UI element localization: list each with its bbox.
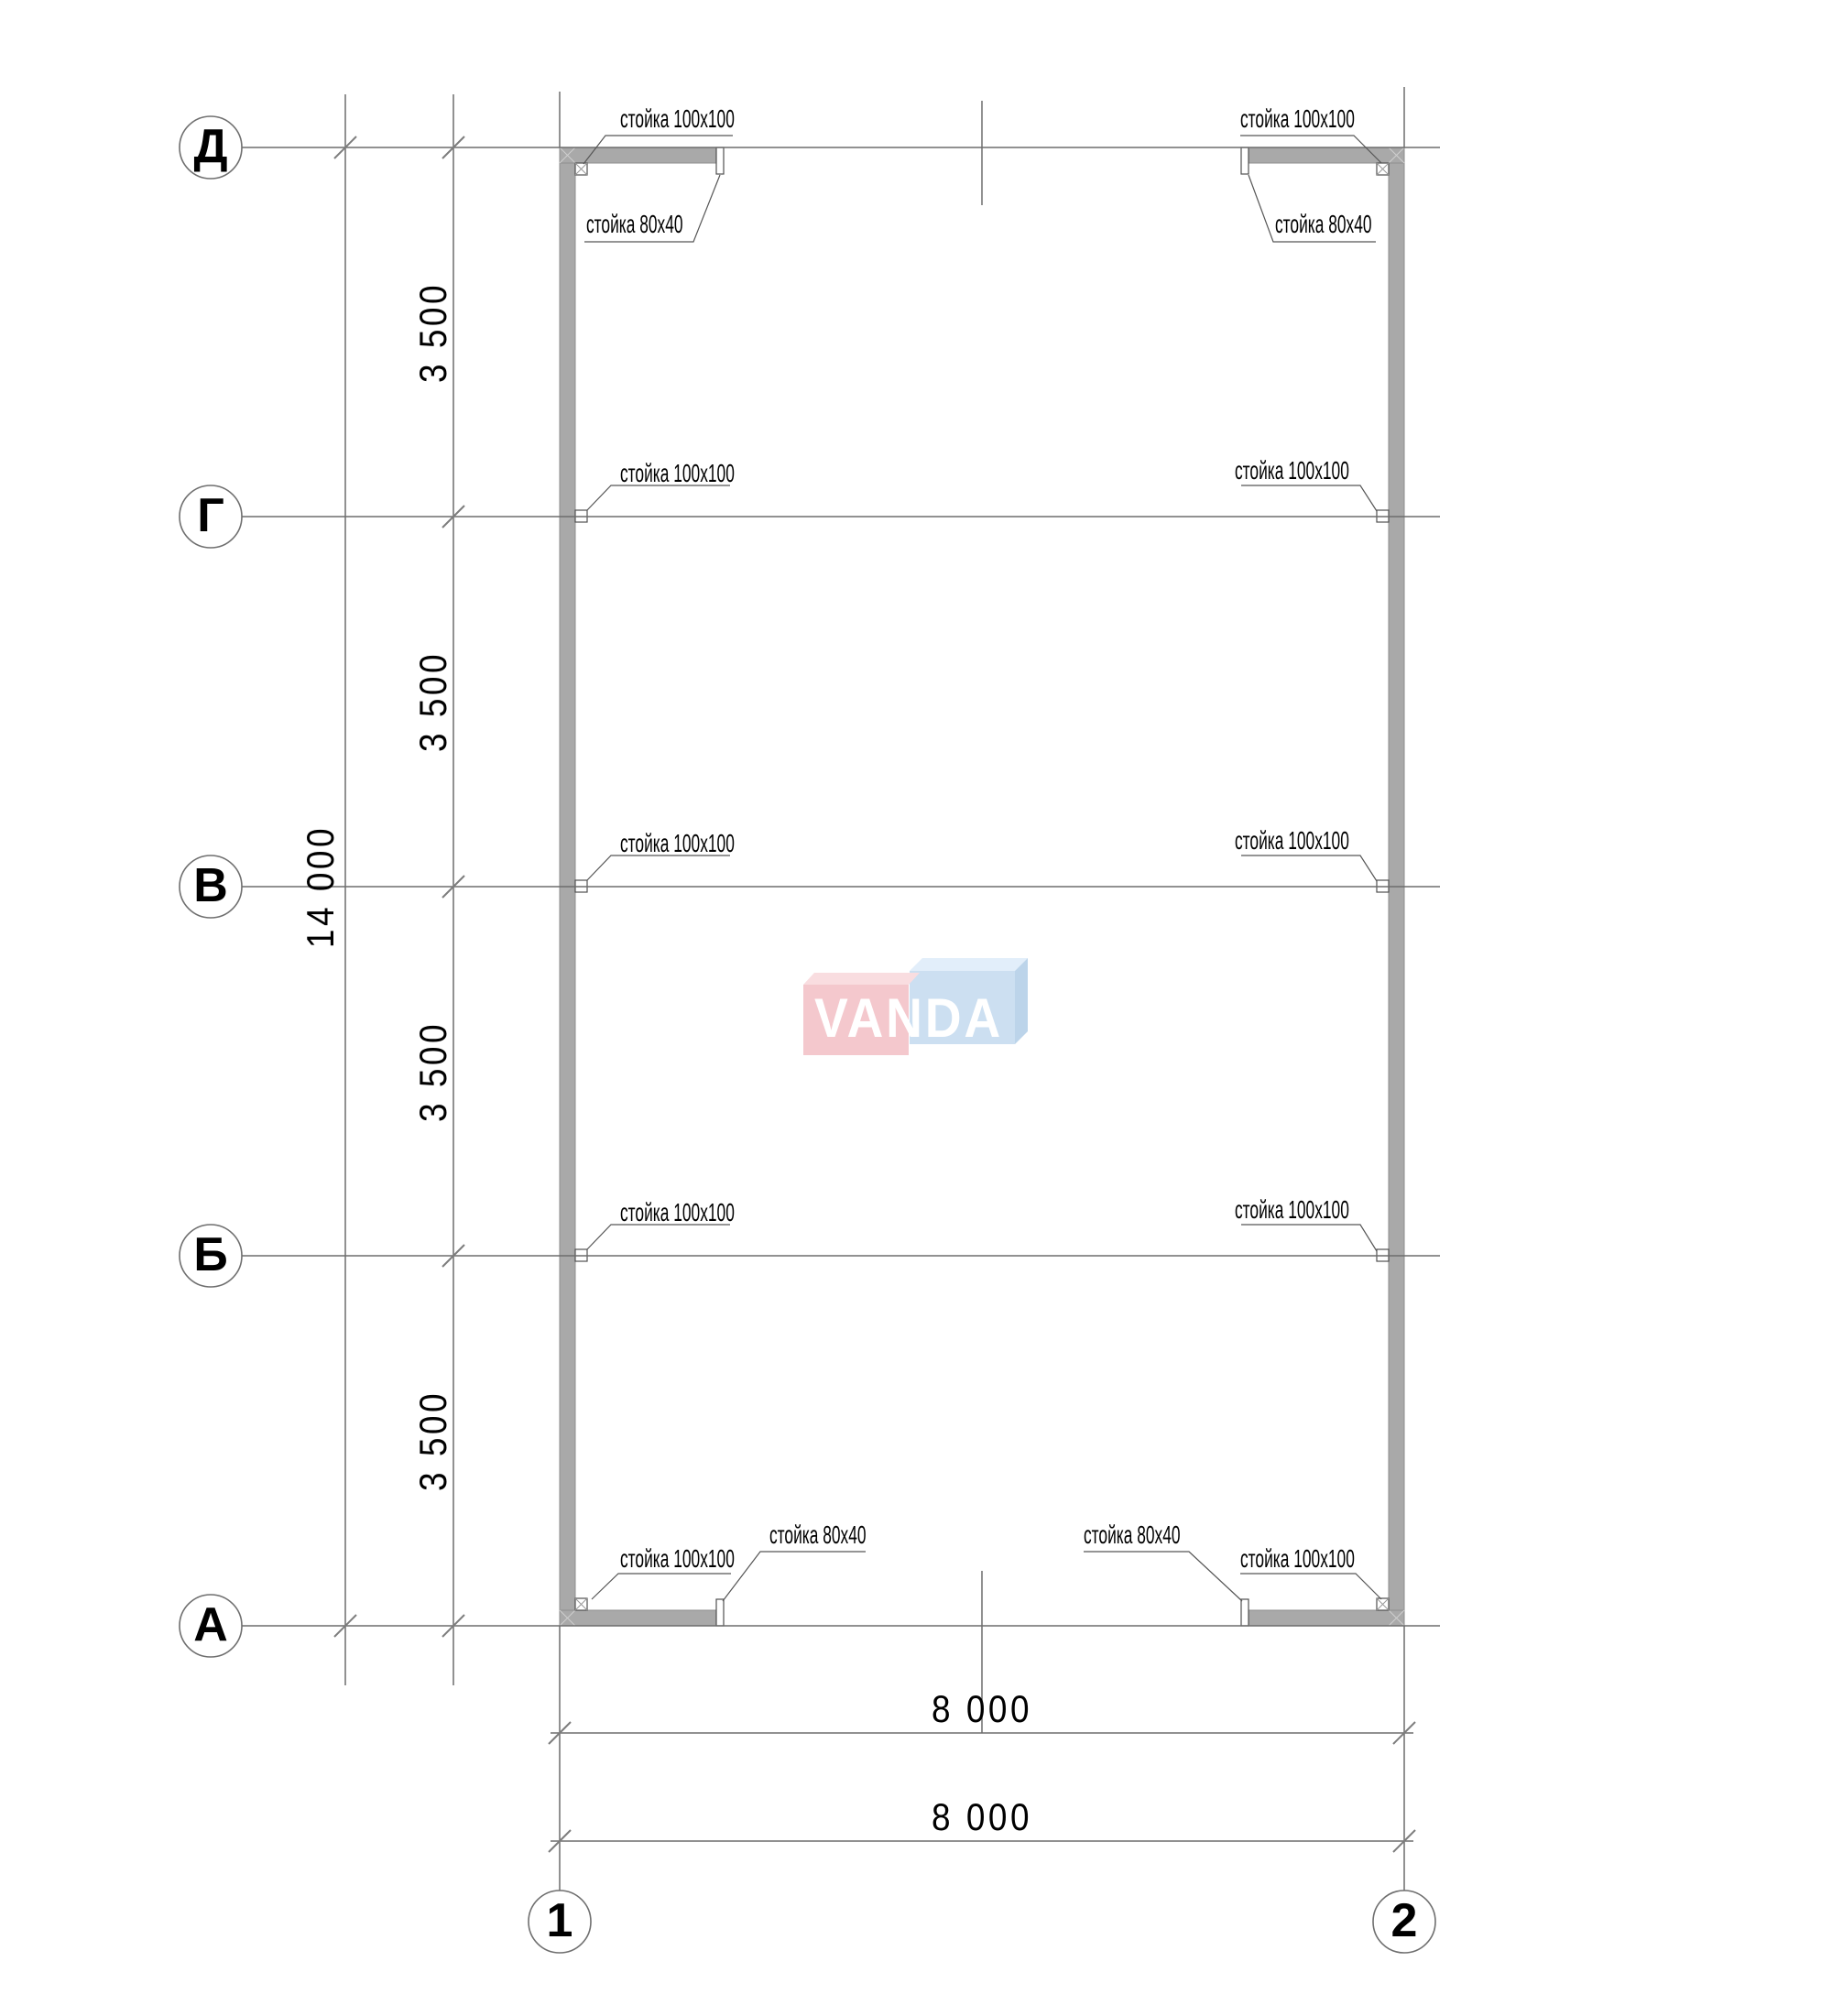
- floor-plan-page: Д Г В Б А 1 2 3 500 3 500 3 500 3 500 14…: [0, 0, 1832, 2016]
- dim-bay-3: 3 500: [414, 1021, 453, 1122]
- post-100-label-row-v-left: стойка 100x100: [620, 831, 735, 856]
- row-axis-label-b: Б: [193, 1231, 227, 1279]
- post-100-label-row-b-right: стойка 100x100: [1235, 1197, 1349, 1223]
- dim-total-height: 14 000: [301, 825, 340, 948]
- post-label-leaders: [583, 136, 1381, 1601]
- post-80-label-top-right: стойка 80x40: [1275, 212, 1372, 237]
- post-80-label-bottom-left: стойка 80x40: [769, 1522, 867, 1548]
- dim-width-bottom: 8 000: [932, 1798, 1032, 1836]
- row-axis-label-v: В: [193, 862, 228, 910]
- post-100-label-top-right: стойка 100x100: [1240, 106, 1355, 132]
- row-axis-label-g: Г: [197, 492, 224, 539]
- post-100-label-bottom-left: стойка 100x100: [620, 1546, 735, 1572]
- vanda-watermark-text: VANDA: [814, 991, 1003, 1046]
- post-100-label-row-g-right: стойка 100x100: [1235, 458, 1349, 484]
- dim-bay-1: 3 500: [414, 282, 453, 383]
- post-100-label-bottom-right: стойка 100x100: [1240, 1546, 1355, 1572]
- row-axis-label-a: А: [193, 1601, 228, 1649]
- post-100-label-top-left: стойка 100x100: [620, 106, 735, 132]
- post-100-label-row-g-left: стойка 100x100: [620, 461, 735, 486]
- row-axis-label-d: Д: [193, 123, 227, 170]
- post-100-label-row-v-right: стойка 100x100: [1235, 828, 1349, 854]
- dim-bay-4: 3 500: [414, 1390, 453, 1491]
- post-80-label-bottom-right: стойка 80x40: [1084, 1522, 1181, 1548]
- post-80-label-top-left: стойка 80x40: [586, 212, 683, 237]
- col-axis-label-2: 2: [1391, 1897, 1418, 1945]
- dim-bay-2: 3 500: [414, 651, 453, 752]
- post-100-label-row-b-left: стойка 100x100: [620, 1200, 735, 1226]
- col-axis-label-1: 1: [547, 1897, 573, 1945]
- dim-width-top: 8 000: [932, 1690, 1032, 1728]
